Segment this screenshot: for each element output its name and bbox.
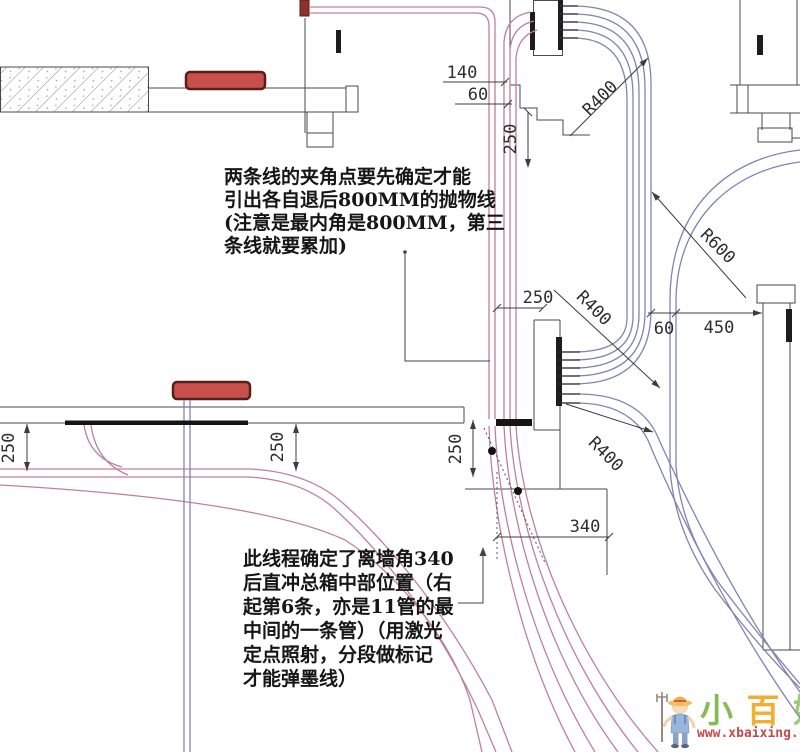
site-watermark: 小 百 姓 www.xbaixing.com <box>655 686 800 752</box>
note1-line-1: 两条线的夹角点要先确定才能 <box>224 166 505 189</box>
dim-label-450: 450 <box>704 318 735 338</box>
brand-char-1: 小 <box>700 691 734 730</box>
note1-line-4: 条线就要累加) <box>224 235 505 258</box>
dim-label-r600: R600 <box>696 225 739 268</box>
hatched-wall <box>1 67 149 112</box>
reference-dots <box>488 447 522 495</box>
farmer-mascot-icon <box>655 688 699 750</box>
note2-line-5: 定点照射，分段做标记 <box>243 643 454 667</box>
dim-label-r400-mid: R400 <box>572 287 615 330</box>
dim-label-250-left: 250 <box>0 433 19 464</box>
note2-line-1: 此线程确定了离墙角340 <box>243 547 454 571</box>
dim-label-r400-top: R400 <box>579 77 622 120</box>
dim-label-250-mid: 250 <box>523 288 554 308</box>
brand-char-2: 百 <box>747 691 781 730</box>
annotation-note-1: 两条线的夹角点要先确定才能 引出各自退后800MM的抛物线 (注意是最内角是80… <box>224 166 505 258</box>
dim-label-60-mid: 60 <box>654 319 674 339</box>
dim-label-250-top: 250 <box>501 124 521 155</box>
dimension-labels: 140 60 250 R400 R600 250 R400 60 450 R40… <box>0 63 739 537</box>
dim-label-250-right: 250 <box>446 434 466 465</box>
note2-line-6: 才能弹墨线） <box>243 667 454 691</box>
dim-label-140: 140 <box>447 63 478 83</box>
cad-drawing-screenshot: 140 60 250 R400 R600 250 R400 60 450 R40… <box>0 0 800 752</box>
annotation-note-2: 此线程确定了离墙角340 后直冲总箱中部位置（右 起第6条，亦是11管的最 中间… <box>243 547 454 691</box>
dim-label-r400-low: R400 <box>584 433 627 476</box>
note2-line-4: 中间的一条管）（用激光 <box>243 619 454 643</box>
note2-line-2: 后直冲总箱中部位置（右 <box>243 571 454 595</box>
note1-line-3: (注意是最内角是800MM，第三 <box>224 212 505 235</box>
dimension-lines <box>27 58 762 565</box>
junction-box-edge <box>300 0 309 16</box>
note2-line-3: 起第6条，亦是11管的最 <box>243 595 454 619</box>
brand-char-3: 姓 <box>793 691 800 730</box>
note1-line-2: 引出各自退后800MM的抛物线 <box>224 189 505 212</box>
junction-box-top <box>186 72 265 89</box>
watermark-url: www.xbaixing.com <box>697 726 800 741</box>
watermark-brand-text: 小 百 姓 <box>700 684 800 732</box>
junction-box-middle <box>173 382 250 399</box>
dim-label-250-center: 250 <box>268 432 288 463</box>
dim-label-340: 340 <box>570 517 601 537</box>
dim-label-60-top: 60 <box>468 85 488 105</box>
